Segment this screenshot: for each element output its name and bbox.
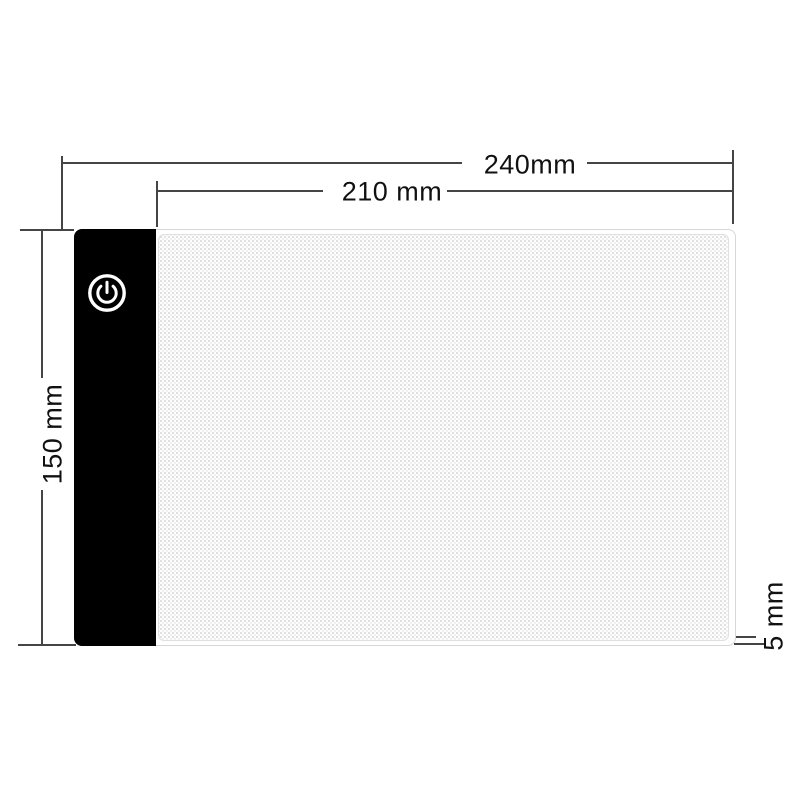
dim-panel-width-tick-left <box>156 181 158 227</box>
light-surface <box>158 234 729 641</box>
dim-height-tick-top <box>20 229 74 231</box>
diagram-canvas: 240mm 210 mm 150 mm 5 mm <box>0 0 800 800</box>
dim-panel-width-line-right <box>447 190 733 192</box>
dim-label-panel-width: 210 mm <box>342 179 443 206</box>
dim-overall-width-line-right <box>587 162 733 164</box>
dim-overall-width-tick-left <box>61 156 63 231</box>
dim-overall-width-line-left <box>62 162 462 164</box>
dim-height-line-bottom <box>41 490 43 645</box>
light-pad-body <box>74 229 736 646</box>
dim-panel-width-line-left <box>157 190 323 192</box>
device-frame-strip <box>74 229 156 646</box>
power-icon <box>86 272 128 314</box>
dim-label-thickness: 5 mm <box>761 581 788 651</box>
dim-height-tick-bottom <box>18 644 76 646</box>
dim-label-overall-width: 240mm <box>484 152 577 179</box>
dim-thickness-line-top <box>736 636 756 638</box>
dim-height-line-top <box>41 231 43 378</box>
power-button <box>86 272 128 314</box>
dim-label-height: 150 mm <box>40 384 67 485</box>
